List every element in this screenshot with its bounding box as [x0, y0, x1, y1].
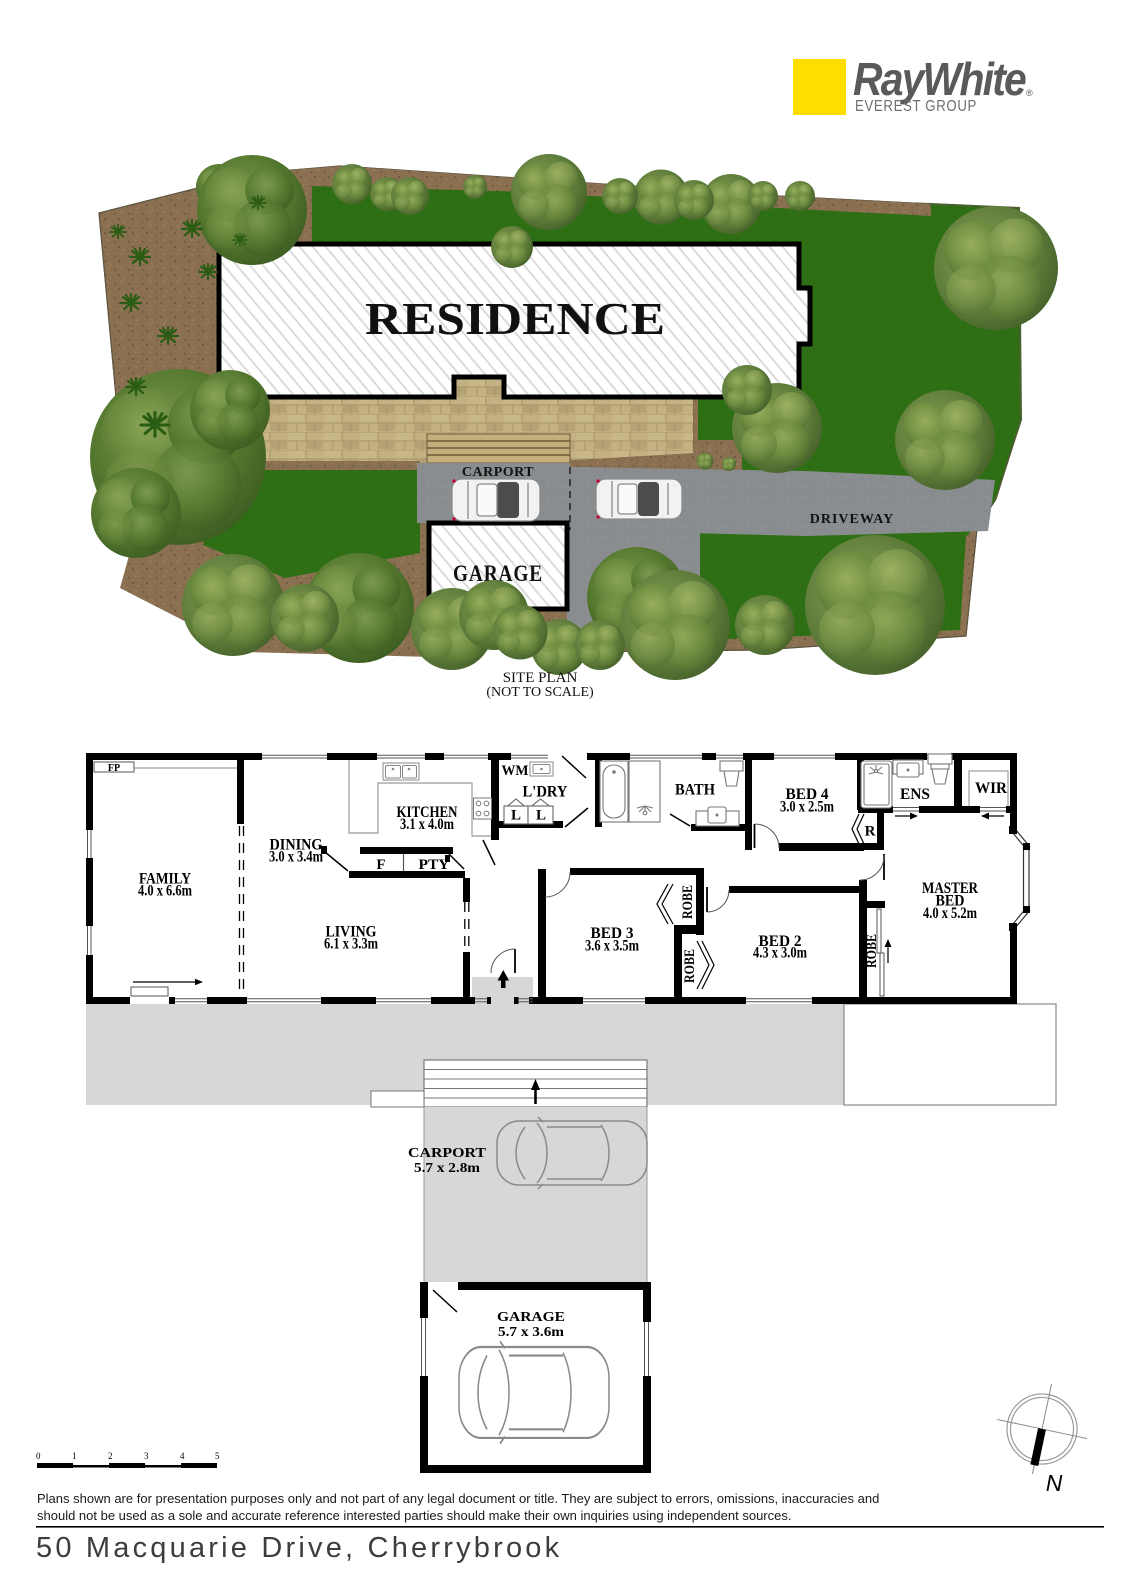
svg-text:R: R [865, 824, 876, 840]
svg-text:DRIVEWAY: DRIVEWAY [810, 512, 895, 527]
svg-text:L: L [536, 808, 546, 824]
svg-text:ROBE: ROBE [680, 885, 696, 919]
svg-text:ROBE: ROBE [682, 949, 698, 983]
svg-text:4.0 x 6.6m: 4.0 x 6.6m [138, 883, 193, 900]
svg-text:PTY: PTY [419, 857, 450, 873]
svg-text:3.0 x 3.4m: 3.0 x 3.4m [269, 849, 324, 866]
svg-text:5.7 x 3.6m: 5.7 x 3.6m [498, 1325, 564, 1340]
svg-text:F: F [376, 857, 385, 873]
svg-text:2: 2 [108, 1451, 113, 1461]
svg-text:N: N [1046, 1470, 1063, 1496]
svg-text:5.7 x 2.8m: 5.7 x 2.8m [414, 1161, 480, 1176]
svg-text:EVEREST GROUP: EVEREST GROUP [855, 98, 977, 115]
svg-text:(NOT TO SCALE): (NOT TO SCALE) [486, 685, 594, 700]
svg-text:SITE PLAN: SITE PLAN [503, 670, 578, 686]
svg-text:3.0 x 2.5m: 3.0 x 2.5m [780, 799, 835, 816]
svg-text:ROBE: ROBE [864, 934, 880, 968]
svg-text:WM: WM [502, 763, 529, 779]
svg-text:3.6 x 3.5m: 3.6 x 3.5m [585, 938, 640, 955]
svg-text:4.0 x 5.2m: 4.0 x 5.2m [923, 905, 978, 922]
svg-text:CARPORT: CARPORT [462, 465, 534, 480]
svg-text:ENS: ENS [900, 786, 930, 803]
svg-text:L: L [511, 808, 521, 824]
svg-text:3.1 x 4.0m: 3.1 x 4.0m [400, 816, 455, 833]
svg-text:6.1 x 3.3m: 6.1 x 3.3m [324, 936, 379, 953]
svg-text:CARPORT: CARPORT [408, 1146, 487, 1161]
svg-text:should not be used as a sole a: should not be used as a sole and accurat… [37, 1508, 791, 1523]
svg-text:®: ® [1026, 88, 1033, 98]
svg-text:WIR: WIR [975, 780, 1007, 797]
svg-text:GARAGE: GARAGE [497, 1310, 565, 1325]
svg-text:RESIDENCE: RESIDENCE [365, 293, 665, 344]
svg-text:5: 5 [215, 1451, 220, 1461]
svg-text:4: 4 [180, 1451, 185, 1461]
svg-text:L'DRY: L'DRY [523, 784, 568, 801]
svg-text:50 Macquarie Drive, Cherrybroo: 50 Macquarie Drive, Cherrybrook [36, 1532, 562, 1564]
svg-text:3: 3 [144, 1451, 149, 1461]
svg-text:FP: FP [108, 763, 120, 774]
svg-text:BATH: BATH [675, 782, 716, 799]
svg-text:1: 1 [72, 1451, 77, 1461]
svg-text:0: 0 [36, 1451, 41, 1461]
svg-text:4.3 x 3.0m: 4.3 x 3.0m [753, 945, 808, 962]
svg-text:Plans shown are for presentati: Plans shown are for presentation purpose… [37, 1491, 879, 1506]
